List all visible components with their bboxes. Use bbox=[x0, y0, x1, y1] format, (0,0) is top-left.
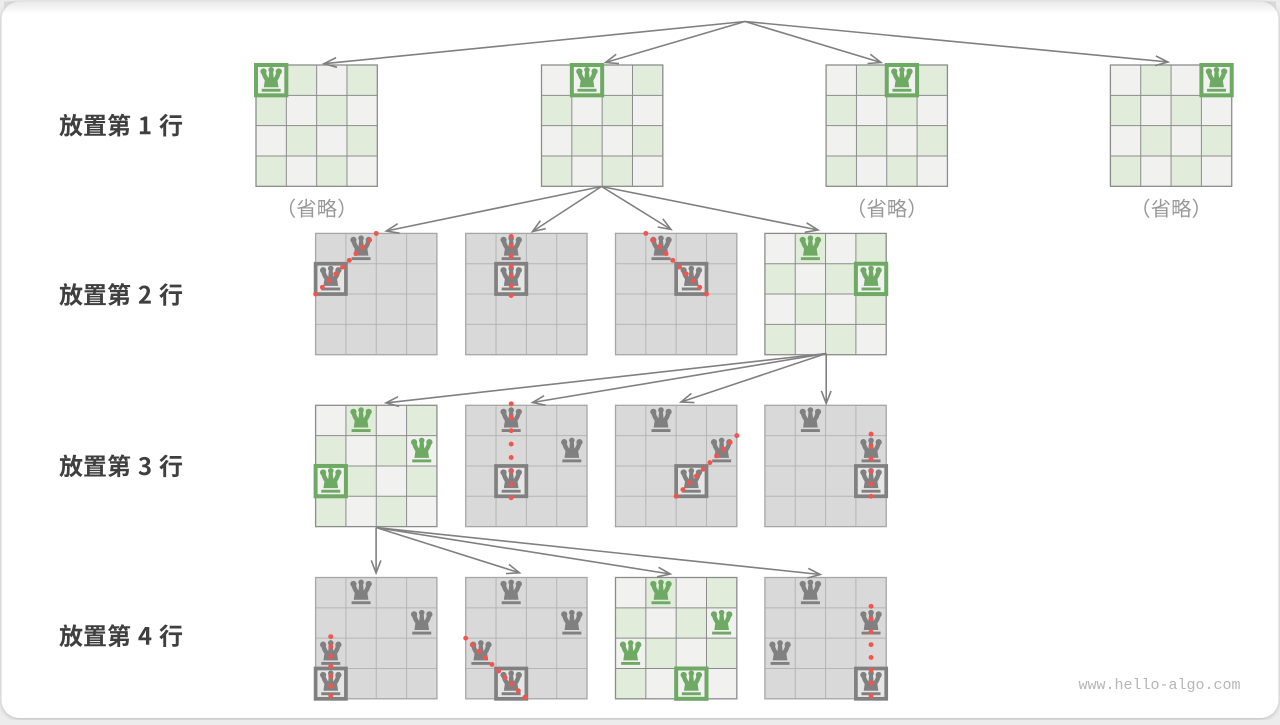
svg-text:www.hello-algo.com: www.hello-algo.com bbox=[1078, 677, 1240, 694]
